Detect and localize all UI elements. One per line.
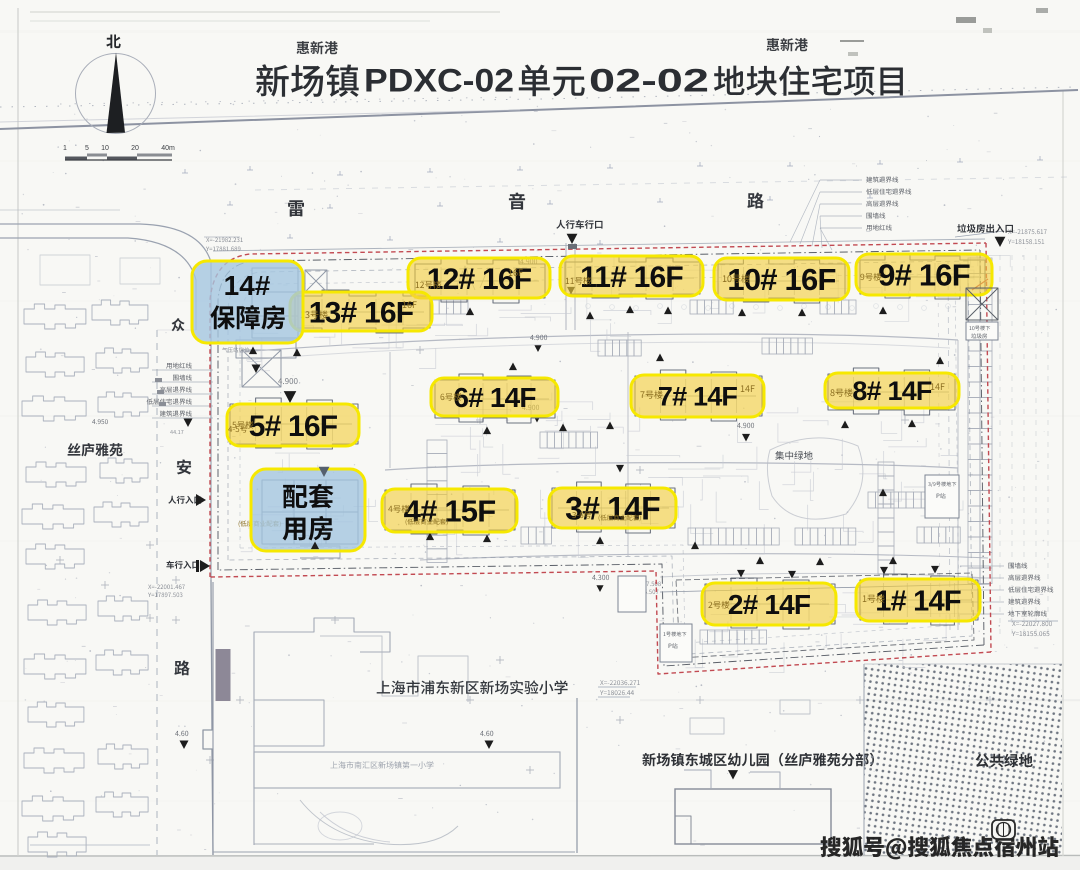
- svg-text:8# 14F: 8# 14F: [852, 376, 932, 406]
- svg-text:5# 16F: 5# 16F: [249, 410, 338, 443]
- svg-text:2# 14F: 2# 14F: [728, 589, 811, 620]
- svg-text:40m: 40m: [161, 145, 175, 152]
- svg-text:7# 14F: 7# 14F: [658, 382, 738, 412]
- svg-text:11# 16F: 11# 16F: [580, 261, 683, 294]
- svg-text:12# 16F: 12# 16F: [427, 263, 532, 296]
- svg-text:1# 14F: 1# 14F: [875, 585, 961, 617]
- svg-text:5: 5: [85, 145, 89, 152]
- svg-text:6# 14F: 6# 14F: [453, 382, 536, 413]
- svg-text:PDXC-02: PDXC-02: [364, 63, 514, 99]
- svg-text:9# 16F: 9# 16F: [878, 258, 970, 293]
- svg-text:14#: 14#: [224, 270, 271, 301]
- svg-text:10# 16F: 10# 16F: [727, 262, 835, 297]
- svg-text:1: 1: [63, 145, 67, 152]
- svg-text:3# 14F: 3# 14F: [565, 491, 660, 527]
- svg-text:10: 10: [101, 145, 109, 152]
- svg-text:4# 15F: 4# 15F: [404, 494, 496, 529]
- svg-text:20: 20: [131, 145, 139, 152]
- svg-text:02-02: 02-02: [589, 63, 709, 99]
